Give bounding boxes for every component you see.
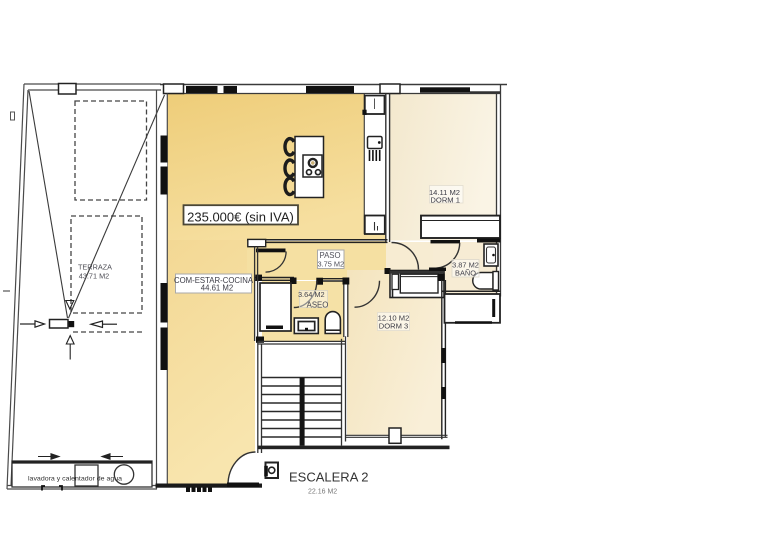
svg-text:235.000€ (sin IVA): 235.000€ (sin IVA) bbox=[187, 210, 294, 225]
svg-text:TERRAZA: TERRAZA bbox=[78, 263, 112, 272]
svg-text:ESCALERA 2: ESCALERA 2 bbox=[289, 470, 369, 485]
svg-text:44.61 M2: 44.61 M2 bbox=[201, 284, 234, 293]
svg-text:ASEO: ASEO bbox=[307, 301, 329, 310]
svg-text:3.64 M2: 3.64 M2 bbox=[298, 290, 325, 299]
svg-text:43.71 M2: 43.71 M2 bbox=[79, 272, 109, 281]
svg-text:22.16 M2: 22.16 M2 bbox=[308, 489, 337, 496]
svg-text:3.75 M2: 3.75 M2 bbox=[317, 259, 344, 268]
svg-text:DORM 3: DORM 3 bbox=[379, 321, 409, 330]
svg-text:DORM 1: DORM 1 bbox=[430, 196, 460, 205]
svg-text:BAÑO: BAÑO bbox=[455, 269, 476, 278]
svg-text:lavadora y calentador de agua: lavadora y calentador de agua bbox=[28, 476, 122, 483]
